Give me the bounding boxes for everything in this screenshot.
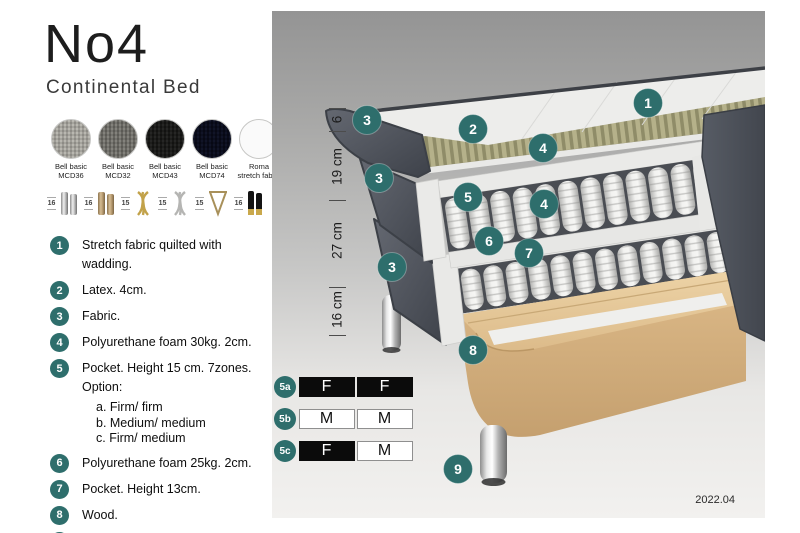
leg-height-label: 15 (195, 195, 204, 212)
callout-badge-8: 8 (459, 336, 488, 365)
leg-option: 15 (195, 189, 230, 217)
svg-text:4: 4 (539, 140, 547, 156)
spec-number-badge: 6 (50, 454, 69, 473)
svg-text:3: 3 (363, 112, 371, 128)
callout-badge-3-middle: 3 (365, 164, 394, 193)
leg-height-label: 15 (158, 195, 167, 212)
svg-text:6: 6 (485, 233, 493, 249)
svg-text:1: 1 (644, 95, 652, 111)
product-sheet: No4 Continental Bed Bell basicMCD36 Bell… (0, 0, 800, 533)
fabric-swatch-row: Bell basicMCD36 Bell basicMCD32 Bell bas… (50, 119, 280, 180)
svg-text:2: 2 (469, 121, 477, 137)
spec-item-5: 5 Pocket. Height 15 cm. 7zones. Option: (50, 359, 275, 397)
firmness-row-5b: 5b M M (274, 408, 413, 430)
firmness-cell: F (299, 377, 355, 397)
spec-item-4: 4 Polyurethane foam 30kg. 2cm. (50, 333, 275, 352)
fabric-swatch: Bell basicMCD43 (144, 119, 186, 180)
svg-text:9: 9 (454, 461, 462, 477)
leg-option: 16 (47, 189, 80, 217)
spec-number-badge: 4 (50, 333, 69, 352)
callout-badge-4-lower: 4 (530, 190, 559, 219)
fabric-swatch: Bell basicMCD74 (191, 119, 233, 180)
firmness-cell: M (299, 409, 355, 429)
svg-text:5: 5 (464, 189, 472, 205)
page-subtitle: Continental Bed (46, 77, 201, 99)
dimension-label-legs: 16 cm (330, 270, 345, 350)
spec-item-7: 7 Pocket. Height 13cm. (50, 480, 275, 499)
firmness-row-5c: 5c F M (274, 440, 413, 462)
leg-option: 15 (121, 189, 154, 217)
spec-number-badge: 5 (50, 359, 69, 378)
firmness-bar: M M (299, 409, 413, 429)
dimension-label-base: 27 cm (330, 201, 345, 281)
leg-height-label: 16 (234, 195, 243, 212)
spec-number-badge: 8 (50, 506, 69, 525)
callout-badge-7: 7 (515, 239, 544, 268)
firmness-cell: M (357, 409, 413, 429)
svg-text:3: 3 (375, 170, 383, 186)
firmness-badge: 5c (274, 440, 296, 462)
callout-badge-9: 9 (444, 455, 473, 484)
spec-item-6: 6 Polyurethane foam 25kg. 2cm. (50, 454, 275, 473)
spec-item-5-options: a. Firm/ firm b. Medium/ medium c. Firm/… (96, 400, 275, 447)
brand-block: No4 Continental Bed (44, 16, 201, 99)
callout-badge-4-upper: 4 (529, 134, 558, 163)
spec-number-badge: 3 (50, 307, 69, 326)
spec-list: 1 Stretch fabric quilted with wadding. 2… (50, 236, 275, 533)
spec-number-badge: 2 (50, 281, 69, 300)
callout-badge-2: 2 (459, 115, 488, 144)
spec-number-badge: 7 (50, 480, 69, 499)
leg-height-label: 15 (121, 195, 130, 212)
svg-text:4: 4 (540, 196, 548, 212)
firmness-badge: 5b (274, 408, 296, 430)
firmness-bar: F F (299, 377, 413, 397)
callout-badge-5: 5 (454, 183, 483, 212)
page-title: No4 (44, 16, 201, 73)
firmness-cell: M (357, 441, 413, 461)
spec-item-8: 8 Wood. (50, 506, 275, 525)
firmness-badge: 5a (274, 376, 296, 398)
fabric-swatch-image (145, 119, 185, 159)
gold-twisted-leg-icon (132, 189, 154, 217)
leg-height-label: 16 (84, 195, 93, 212)
fabric-swatch-image (98, 119, 138, 159)
leg-option: 16 (234, 189, 265, 217)
leg-option: 16 (84, 189, 117, 217)
svg-text:8: 8 (469, 342, 477, 358)
leg-height-label: 16 (47, 195, 56, 212)
spec-number-badge: 1 (50, 236, 69, 255)
spec-item-2: 2 Latex. 4cm. (50, 281, 275, 300)
spec-item-3: 3 Fabric. (50, 307, 275, 326)
fabric-swatch: Bell basicMCD36 (50, 119, 92, 180)
version-label: 2022.04 (695, 494, 735, 506)
firmness-cell: F (299, 441, 355, 461)
black-gold-legs-icon (245, 189, 265, 217)
bed-front-leg (480, 425, 507, 486)
callout-badge-1: 1 (634, 89, 663, 118)
callout-badge-6: 6 (475, 227, 504, 256)
firmness-bar: F M (299, 441, 413, 461)
svg-text:7: 7 (525, 245, 533, 261)
spec-item-1: 1 Stretch fabric quilted with wadding. (50, 236, 275, 274)
dimension-label-mattress: 19 cm (330, 127, 345, 207)
silver-twisted-leg-icon (169, 189, 191, 217)
callout-badge-3-bottom: 3 (378, 253, 407, 282)
chrome-cylinder-legs-icon (58, 189, 80, 217)
hairpin-leg-icon (206, 189, 230, 217)
svg-text:3: 3 (388, 259, 396, 275)
firmness-row-5a: 5a F F (274, 376, 413, 398)
fabric-swatch: Bell basicMCD32 (97, 119, 139, 180)
fabric-swatch-image (192, 119, 232, 159)
fabric-swatch-image (51, 119, 91, 159)
leg-options-row: 16 16 15 (47, 189, 265, 217)
bronze-cylinder-legs-icon (95, 189, 117, 217)
bed-cutaway-panel: 1 2 3 4 5 4 3 6 7 3 8 9 6 19 cm 27 cm 16… (272, 11, 765, 518)
leg-option: 15 (158, 189, 191, 217)
callout-badge-3-top: 3 (353, 106, 382, 135)
firmness-cell: F (357, 377, 413, 397)
